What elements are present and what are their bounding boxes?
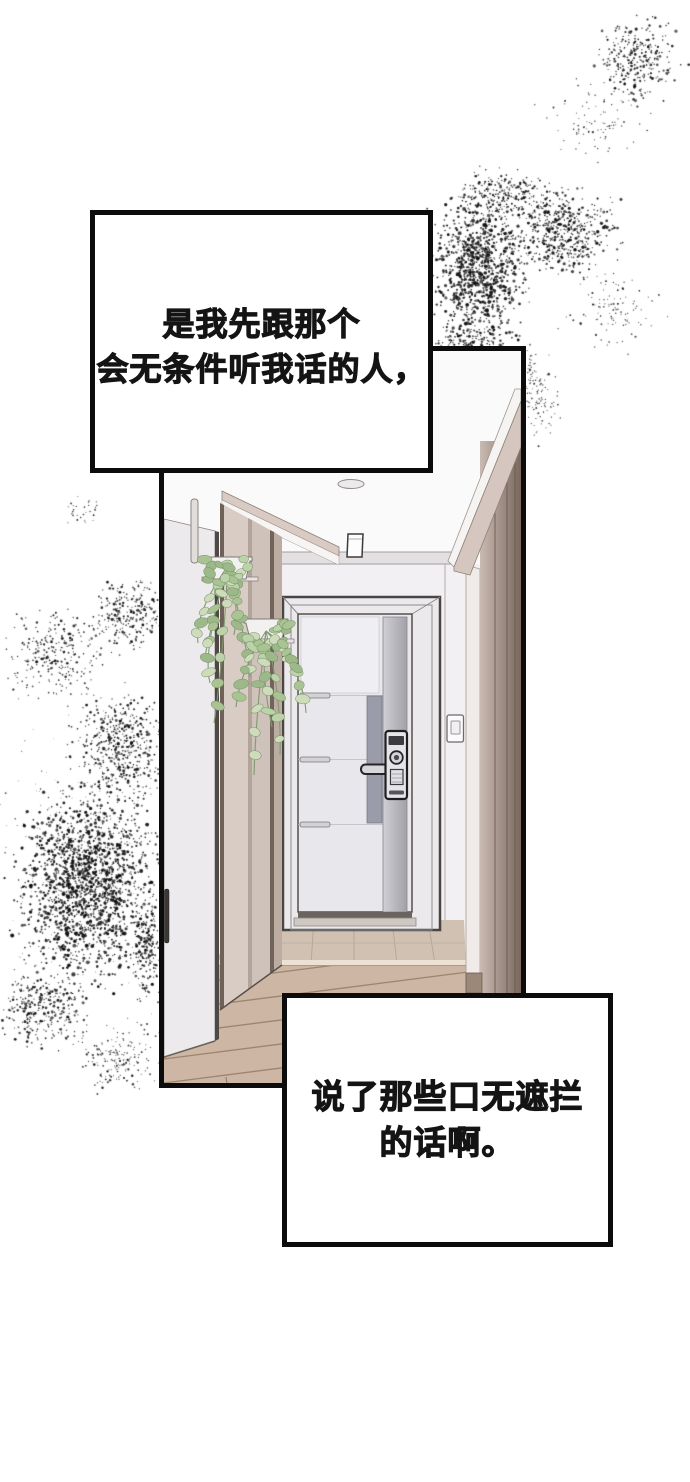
dialogue-line: 说了那些口无遮拦 [312, 1074, 584, 1120]
speech-box-top: 是我先跟那个 会无条件听我话的人， [90, 210, 433, 473]
door-gap-shadow [298, 912, 412, 918]
door-accent-stripe [367, 696, 382, 823]
plant-bracket-pole [191, 499, 198, 563]
door-threshold [294, 918, 416, 926]
right-baseboard [466, 973, 482, 993]
ceiling-light [338, 480, 364, 489]
dialogue-line: 是我先跟那个 [162, 302, 360, 347]
wall-switch [447, 715, 464, 742]
dialogue-line: 的话啊。 [380, 1120, 516, 1166]
front-door [283, 597, 440, 930]
left-door-handle [165, 889, 170, 943]
speech-box-bottom: 说了那些口无遮拦 的话啊。 [282, 993, 613, 1247]
ceiling-sensor-box [347, 534, 363, 557]
dialogue-line: 会无条件听我话的人， [96, 347, 426, 392]
